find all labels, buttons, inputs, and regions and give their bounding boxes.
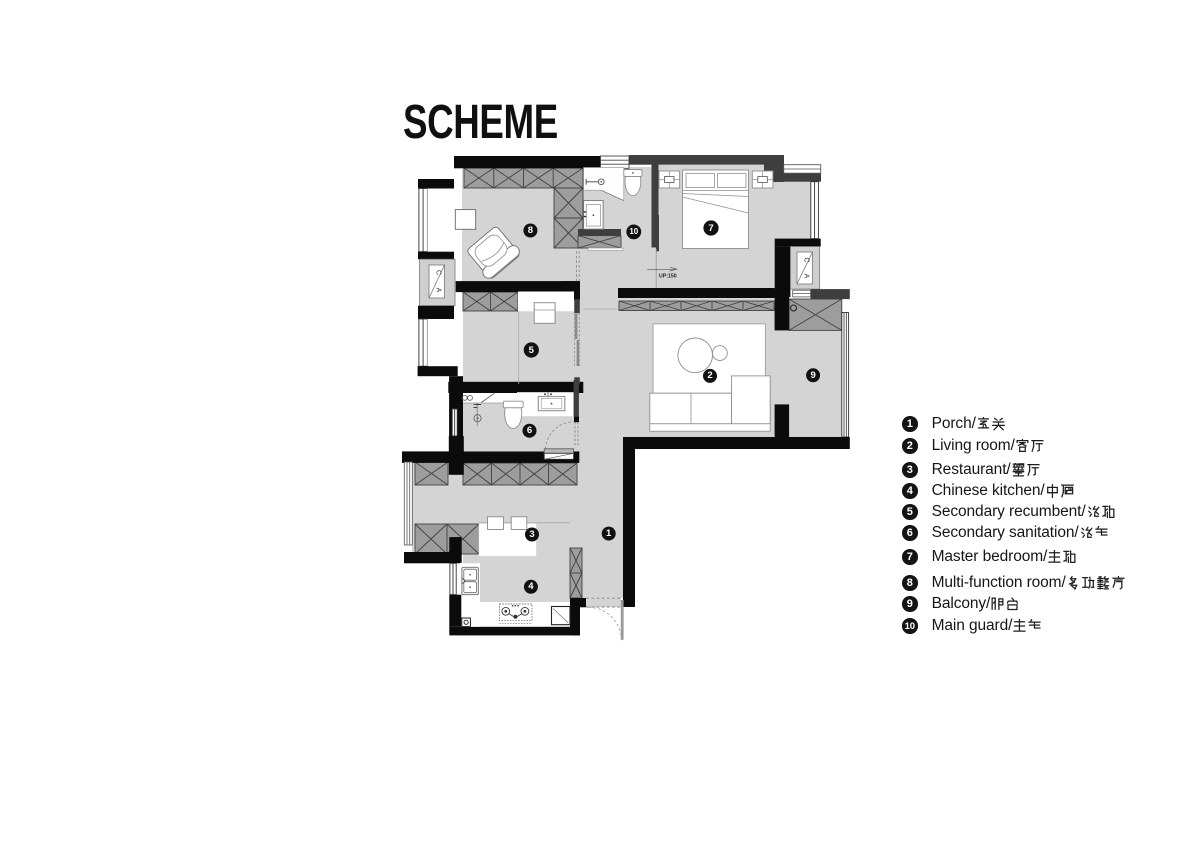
svg-text:UP:150: UP:150	[659, 274, 677, 280]
svg-text:A: A	[803, 274, 810, 279]
svg-text:A: A	[435, 288, 442, 293]
svg-text:C: C	[803, 257, 810, 262]
svg-text:C: C	[435, 270, 442, 275]
